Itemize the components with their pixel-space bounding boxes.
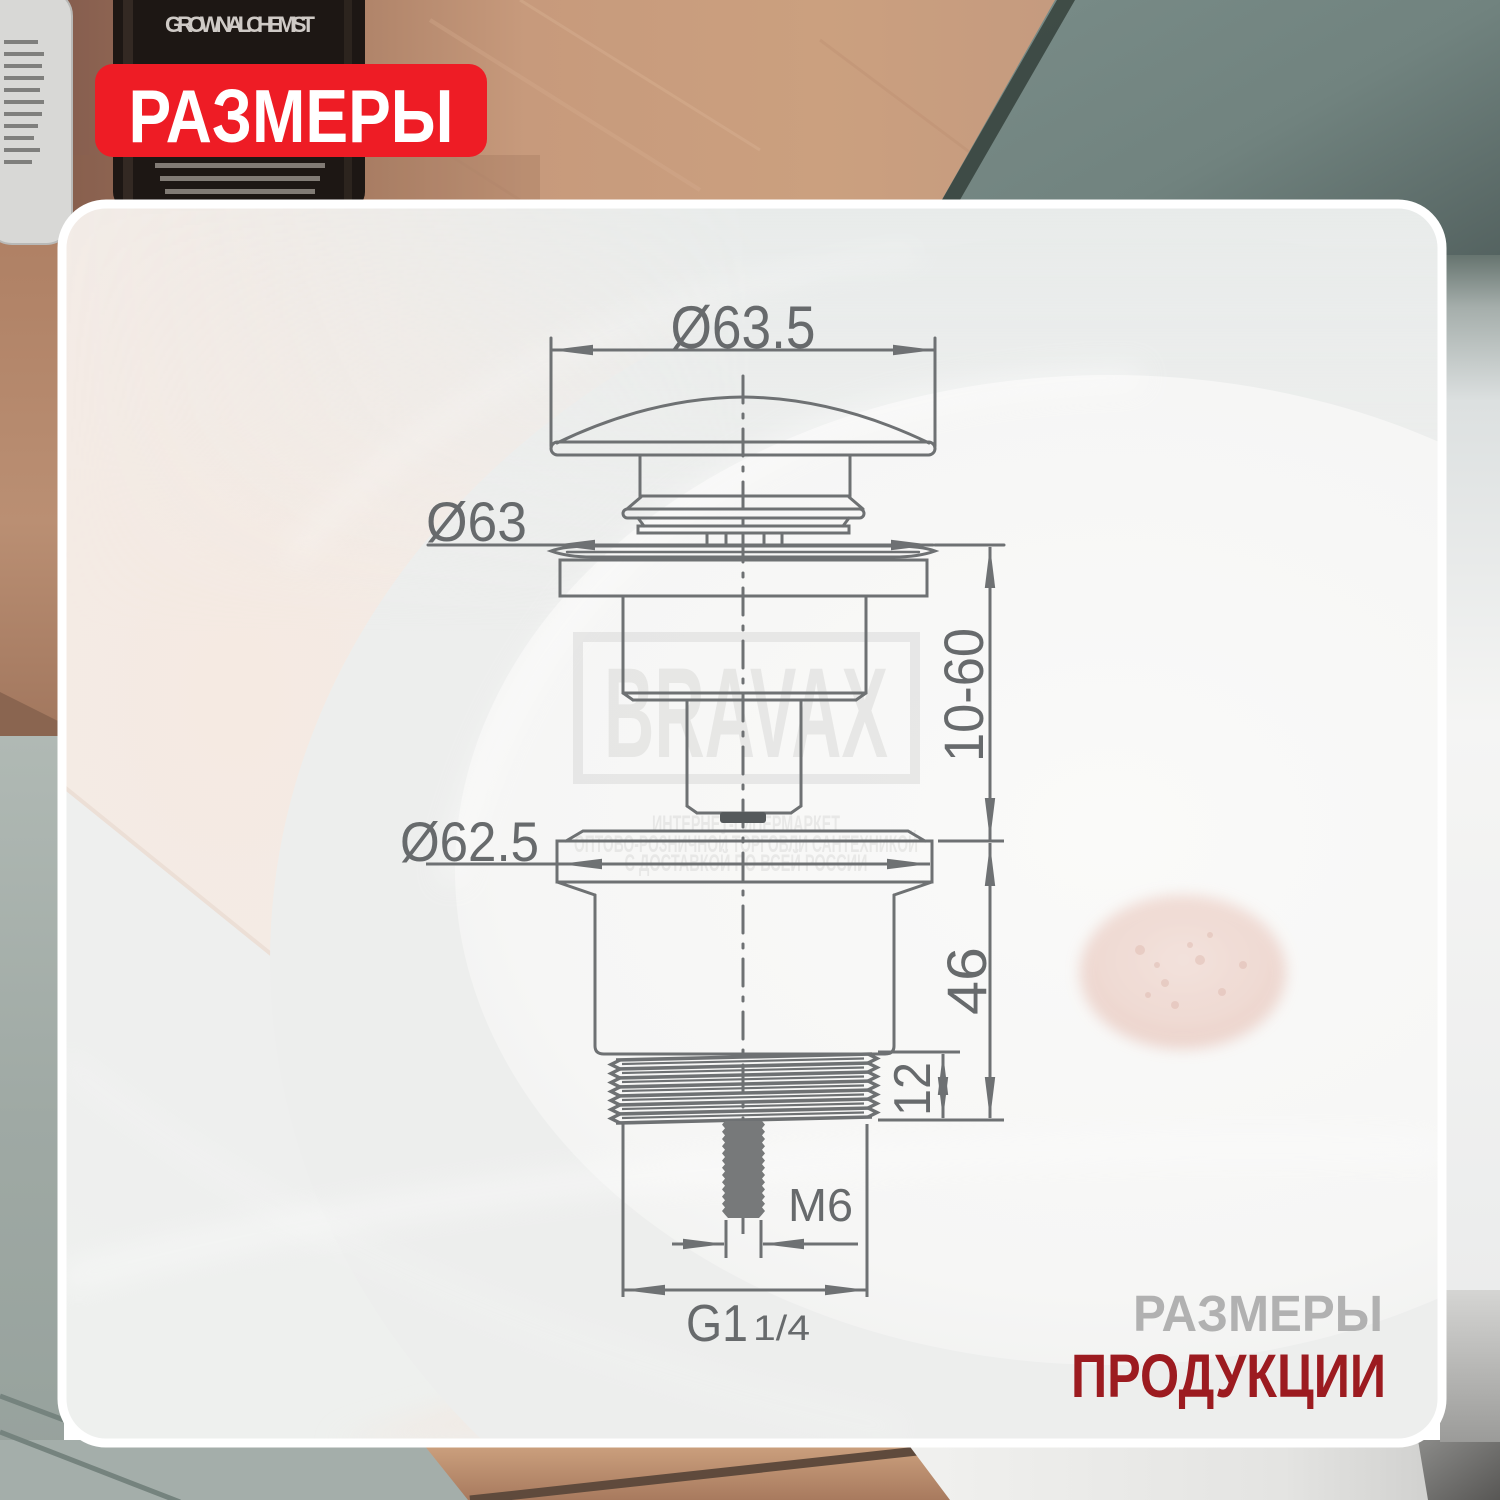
svg-text:Ø62.5: Ø62.5	[400, 810, 539, 873]
svg-text:РАЗМЕРЫ: РАЗМЕРЫ	[129, 74, 454, 158]
svg-text:ПРОДУКЦИИ: ПРОДУКЦИИ	[1071, 1342, 1386, 1410]
svg-text:10-60: 10-60	[932, 628, 995, 762]
svg-text:BRAVAX: BRAVAX	[604, 642, 888, 785]
svg-text:Ø63: Ø63	[426, 490, 527, 553]
svg-text:G1: G1	[686, 1295, 748, 1353]
svg-text:1/4: 1/4	[753, 1309, 810, 1348]
svg-text:РАЗМЕРЫ: РАЗМЕРЫ	[1133, 1285, 1383, 1342]
svg-text:12: 12	[884, 1062, 942, 1116]
svg-text:46: 46	[935, 947, 998, 1015]
svg-text:Ø63.5: Ø63.5	[671, 294, 816, 361]
svg-text:GROWN ALCHEMIST: GROWN ALCHEMIST	[165, 12, 316, 37]
svg-text:M6: M6	[788, 1179, 853, 1231]
